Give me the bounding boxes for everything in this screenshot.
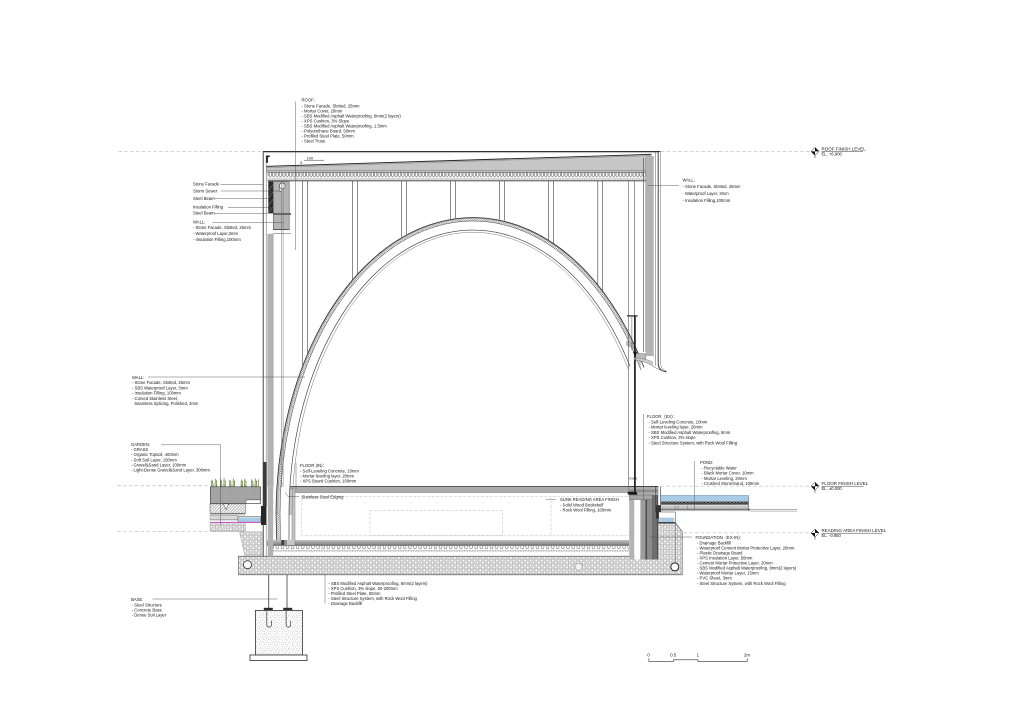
svg-text:FLOOR (IN):: FLOOR (IN): xyxy=(300,463,324,468)
svg-text:FLOOR（EX):: FLOOR（EX): xyxy=(647,414,674,419)
svg-text:Seamless Splicing, Polished, 3: Seamless Splicing, Polished, 3mm xyxy=(134,401,199,406)
svg-text:EL. -0.950: EL. -0.950 xyxy=(822,533,842,538)
svg-text:SUNK READING AREA FINISH: SUNK READING AREA FINISH xyxy=(560,497,619,502)
svg-text:Steel Beam: Steel Beam xyxy=(193,211,215,216)
svg-text:- Rock Wool Filling, 100mm: - Rock Wool Filling, 100mm xyxy=(560,507,612,512)
svg-text:- Self-Leveling Concrete, 10mm: - Self-Leveling Concrete, 10mm xyxy=(649,419,708,424)
svg-text:WALL:: WALL: xyxy=(193,220,205,225)
svg-text:ROOF FINISH LEVEL: ROOF FINISH LEVEL xyxy=(822,146,867,151)
svg-text:EL. ±0.000: EL. ±0.000 xyxy=(822,486,843,491)
svg-text:3: 3 xyxy=(300,161,302,165)
svg-text:Storm Sewer: Storm Sewer xyxy=(193,188,218,193)
svg-text:100: 100 xyxy=(307,156,313,160)
svg-text:Stone Facade: Stone Facade xyxy=(193,182,220,187)
svg-text:- Waterproof Layer, 3mm: - Waterproof Layer, 3mm xyxy=(683,191,730,196)
svg-text:- Insulation Filling,100mm: - Insulation Filling,100mm xyxy=(193,237,241,242)
svg-text:POND:: POND: xyxy=(700,460,713,465)
svg-text:- Crushed Stone/Sand, 100mm: - Crushed Stone/Sand, 100mm xyxy=(702,481,760,486)
svg-text:- Drainage Backfill: - Drainage Backfill xyxy=(328,601,362,606)
svg-text:- Stone Facade, Slotted, 25mm: - Stone Facade, Slotted, 25mm xyxy=(683,184,741,189)
svg-text:0.5: 0.5 xyxy=(670,652,677,657)
svg-text:- Light-Dense Gravel&Sand Laye: - Light-Dense Gravel&Sand Layer, 300mm xyxy=(131,468,210,473)
svg-text:- Steel Structure System, with: - Steel Structure System, with Rock Wool… xyxy=(649,441,738,446)
svg-text:- Stone Facade, Slotted, 25mm: - Stone Facade, Slotted, 25mm xyxy=(193,225,251,230)
svg-text:WALL:: WALL: xyxy=(683,178,695,183)
svg-text:- XPS Cushion, 3% slope: - XPS Cushion, 3% slope xyxy=(649,435,697,440)
svg-text:- Black Mortar Cover, 10mm: - Black Mortar Cover, 10mm xyxy=(702,471,755,476)
svg-text:- Insulation Filling,100mm: - Insulation Filling,100mm xyxy=(683,198,731,203)
svg-text:- Mortar Leveling, 20mm: - Mortar Leveling, 20mm xyxy=(702,476,748,481)
svg-text:2m: 2m xyxy=(744,652,750,657)
svg-text:- Steel Structure System, with: - Steel Structure System, with Rock Wool… xyxy=(697,581,786,586)
svg-text:- XPS Board Cushion, 100mm: - XPS Board Cushion, 100mm xyxy=(300,479,357,484)
svg-text:WALL:: WALL: xyxy=(132,375,144,380)
svg-text:- Dense Soil Layer: - Dense Soil Layer xyxy=(132,612,167,617)
svg-text:- SBS Modified Asphalt Waterpr: - SBS Modified Asphalt Waterproofing, 8m… xyxy=(649,430,731,435)
svg-text:- Mortar leveling layer, 20mm: - Mortar leveling layer, 20mm xyxy=(649,425,704,430)
svg-text:- Steel Truss: - Steel Truss xyxy=(302,138,326,143)
svg-text:- Recyclable Water: - Recyclable Water xyxy=(702,465,738,470)
svg-text:EVEN: EVEN xyxy=(630,476,638,480)
svg-text:Stainless Steel Edging: Stainless Steel Edging xyxy=(302,494,345,499)
svg-text:Steel Beam: Steel Beam xyxy=(193,196,215,201)
svg-text:- Waterproof Layer,3mm: - Waterproof Layer,3mm xyxy=(193,231,239,236)
svg-text:EL. +6.900: EL. +6.900 xyxy=(822,152,843,157)
svg-text:Insulation Filling: Insulation Filling xyxy=(193,205,224,210)
svg-text:ROOF:: ROOF: xyxy=(302,98,315,103)
